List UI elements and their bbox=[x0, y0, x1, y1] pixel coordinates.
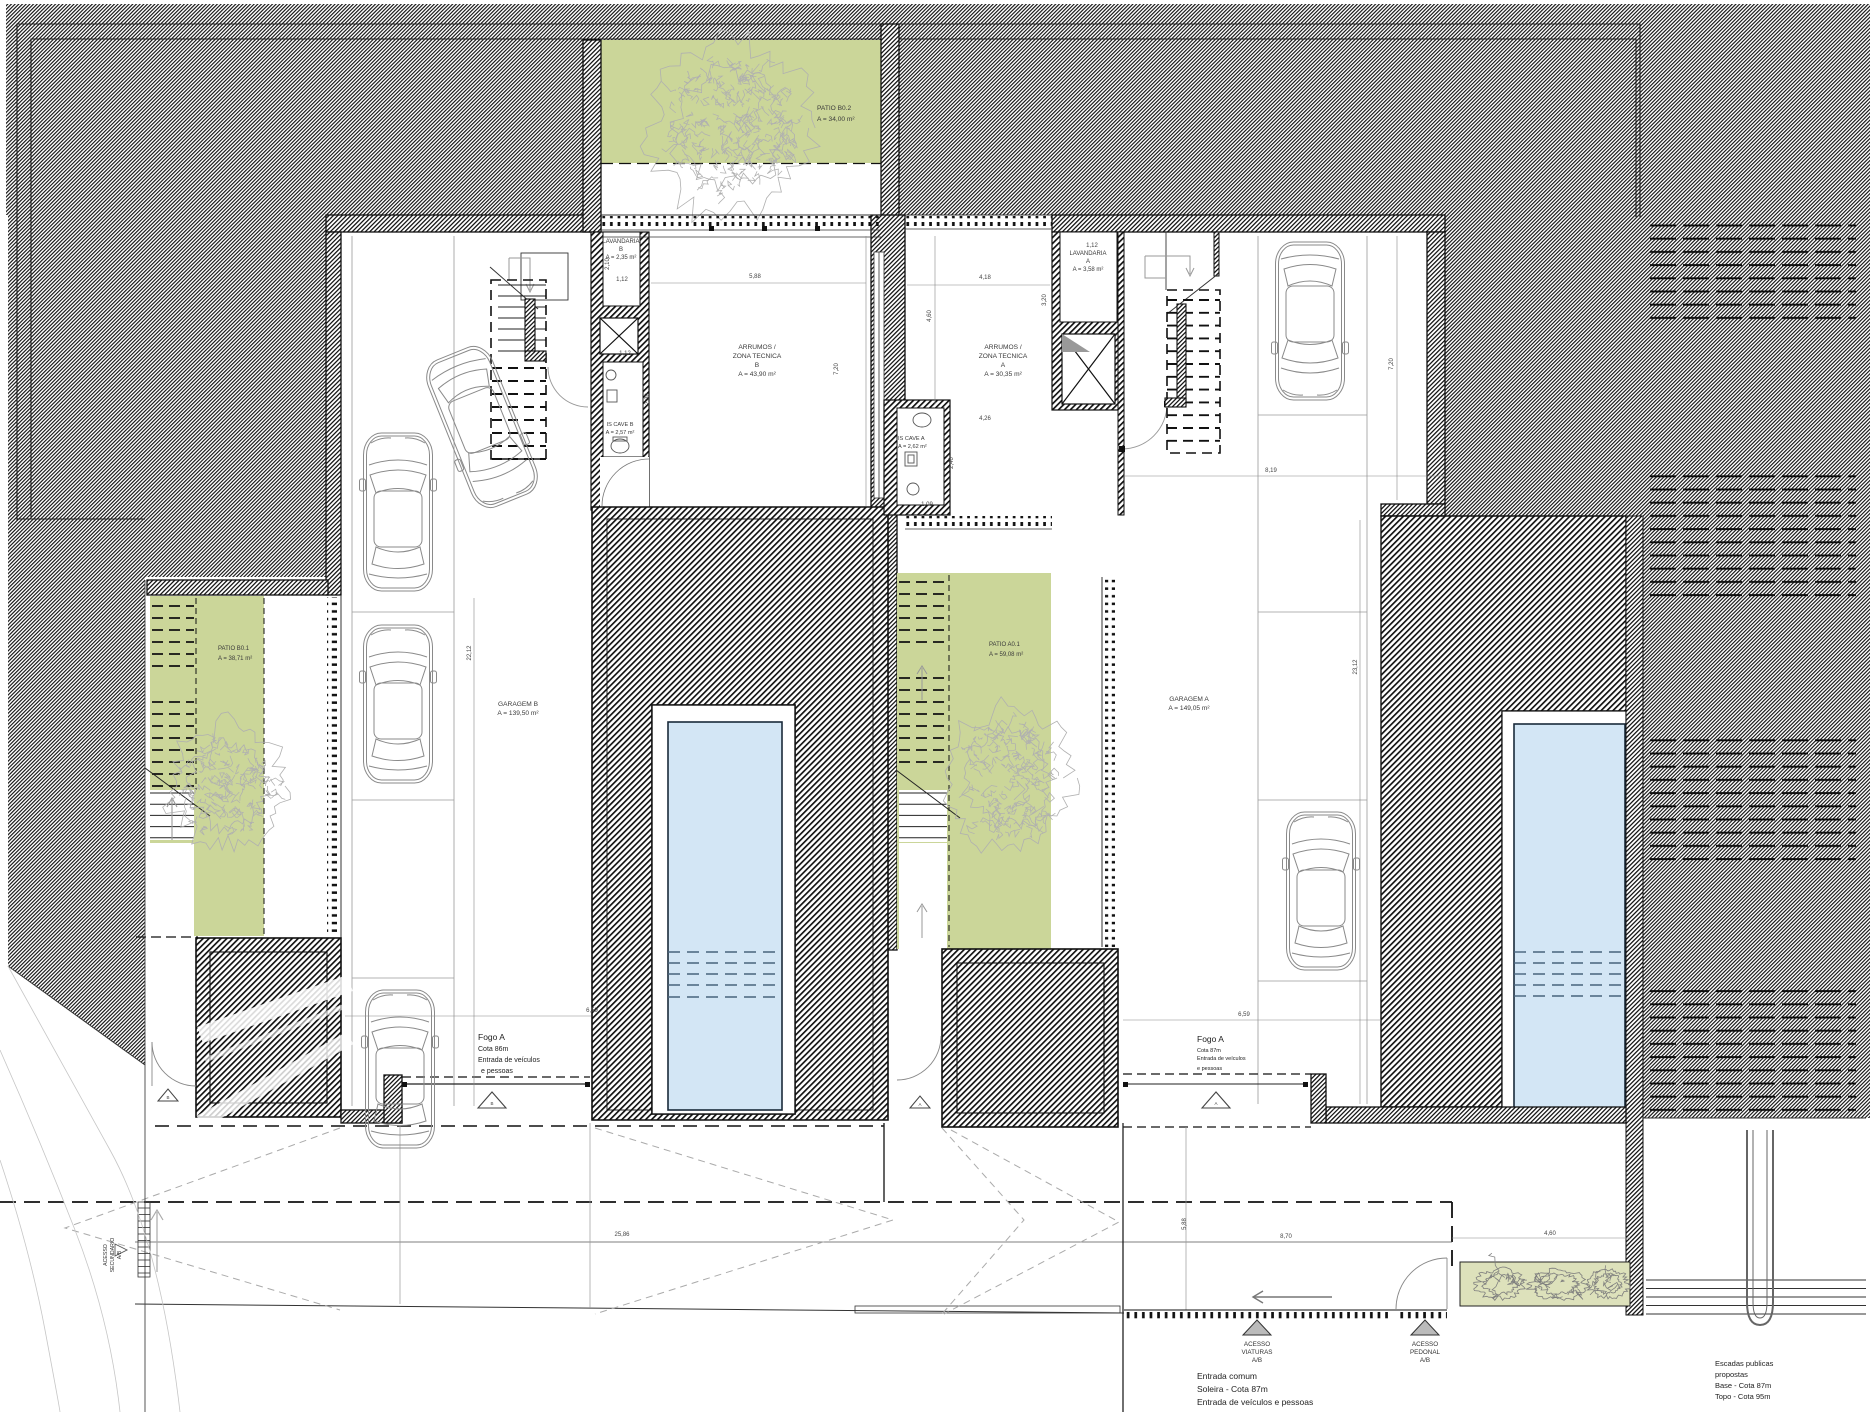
svg-text:23,12: 23,12 bbox=[1353, 659, 1359, 675]
svg-text:ARRUMOS /: ARRUMOS / bbox=[738, 344, 776, 351]
svg-text:LAVANDARIA: LAVANDARIA bbox=[602, 239, 639, 245]
svg-text:ACESSO: ACESSO bbox=[103, 1244, 109, 1266]
svg-text:5,88: 5,88 bbox=[749, 274, 761, 280]
svg-text:ZONA TECNICA: ZONA TECNICA bbox=[979, 353, 1028, 360]
svg-text:B: B bbox=[166, 1095, 169, 1100]
svg-text:Escadas publicas: Escadas publicas bbox=[1715, 1359, 1774, 1368]
svg-text:LAVANDARIA: LAVANDARIA bbox=[1069, 251, 1106, 257]
svg-text:2,10: 2,10 bbox=[605, 258, 611, 270]
svg-text:Entrada comum: Entrada comum bbox=[1197, 1371, 1257, 1381]
svg-text:B: B bbox=[619, 247, 623, 253]
svg-text:A: A bbox=[918, 1102, 921, 1107]
svg-text:6,59: 6,59 bbox=[586, 1008, 598, 1014]
svg-text:7,20: 7,20 bbox=[834, 363, 840, 375]
svg-text:A = 34,00 m²: A = 34,00 m² bbox=[817, 116, 855, 123]
svg-text:A = 3,58 m²: A = 3,58 m² bbox=[1073, 267, 1104, 273]
svg-text:Soleira - Cota 87m: Soleira - Cota 87m bbox=[1197, 1384, 1268, 1394]
svg-text:22,12: 22,12 bbox=[467, 645, 473, 661]
svg-text:A/B: A/B bbox=[117, 1250, 123, 1259]
svg-text:PATIO A0.1: PATIO A0.1 bbox=[989, 642, 1020, 648]
svg-text:PATIO B0.1: PATIO B0.1 bbox=[218, 646, 250, 652]
svg-text:A = 38,71 m²: A = 38,71 m² bbox=[218, 656, 252, 662]
svg-text:1,09: 1,09 bbox=[921, 502, 933, 508]
svg-text:ARRUMOS /: ARRUMOS / bbox=[984, 344, 1022, 351]
svg-text:Cota 87m: Cota 87m bbox=[1197, 1048, 1221, 1054]
svg-text:A = 2,62 m²: A = 2,62 m² bbox=[898, 444, 927, 450]
svg-text:ACESSO: ACESSO bbox=[1412, 1341, 1438, 1348]
svg-text:B: B bbox=[490, 1101, 493, 1106]
svg-text:1,12: 1,12 bbox=[619, 351, 631, 357]
svg-text:e pessoas: e pessoas bbox=[481, 1068, 513, 1075]
svg-text:SECUNDARIO: SECUNDARIO bbox=[110, 1238, 116, 1273]
svg-text:A/B: A/B bbox=[1420, 1357, 1430, 1364]
svg-text:7,20: 7,20 bbox=[1389, 358, 1395, 370]
svg-text:25,86: 25,86 bbox=[614, 1232, 630, 1238]
svg-text:GARAGEM A: GARAGEM A bbox=[1169, 696, 1209, 703]
svg-text:4,60: 4,60 bbox=[1544, 1231, 1556, 1237]
svg-text:1,12: 1,12 bbox=[616, 277, 628, 283]
svg-text:propostas: propostas bbox=[1715, 1370, 1748, 1379]
svg-text:8,70: 8,70 bbox=[1280, 1234, 1292, 1240]
svg-text:1,12: 1,12 bbox=[1086, 243, 1098, 249]
svg-text:A: A bbox=[1214, 1101, 1217, 1106]
svg-text:A = 43,90 m²: A = 43,90 m² bbox=[738, 371, 776, 378]
svg-text:A = 30,35 m²: A = 30,35 m² bbox=[984, 371, 1022, 378]
svg-text:4,18: 4,18 bbox=[979, 275, 991, 281]
svg-text:Topo - Cota 95m: Topo - Cota 95m bbox=[1715, 1392, 1770, 1401]
svg-text:ZONA TECNICA: ZONA TECNICA bbox=[733, 353, 782, 360]
svg-text:GARAGEM B: GARAGEM B bbox=[498, 701, 539, 708]
svg-text:PEDONAL: PEDONAL bbox=[1410, 1349, 1441, 1356]
svg-text:2,40: 2,40 bbox=[949, 457, 955, 469]
svg-text:A = 2,57 m²: A = 2,57 m² bbox=[606, 430, 635, 436]
svg-text:A: A bbox=[1086, 259, 1090, 265]
svg-text:IS CAVE A: IS CAVE A bbox=[898, 436, 925, 442]
svg-text:3,20: 3,20 bbox=[1042, 294, 1048, 306]
svg-text:IS CAVE B: IS CAVE B bbox=[607, 422, 634, 428]
svg-text:5,88: 5,88 bbox=[1182, 1218, 1188, 1230]
svg-text:Entrada de veículos e pessoas: Entrada de veículos e pessoas bbox=[1197, 1397, 1313, 1407]
svg-text:VIATURAS: VIATURAS bbox=[1241, 1349, 1272, 1356]
svg-text:Cota 86m: Cota 86m bbox=[478, 1046, 509, 1053]
svg-text:e pessoas: e pessoas bbox=[1197, 1066, 1222, 1072]
svg-text:ACESSO: ACESSO bbox=[1244, 1341, 1270, 1348]
svg-text:Fogo A: Fogo A bbox=[1197, 1034, 1224, 1044]
svg-text:A: A bbox=[1001, 362, 1006, 369]
svg-text:2,30: 2,30 bbox=[645, 393, 651, 405]
svg-text:Base - Cota 87m: Base - Cota 87m bbox=[1715, 1381, 1771, 1390]
svg-text:Entrada de veículos: Entrada de veículos bbox=[1197, 1056, 1246, 1062]
svg-text:6,59: 6,59 bbox=[1238, 1012, 1250, 1018]
svg-text:4,26: 4,26 bbox=[979, 416, 991, 422]
svg-text:A = 139,50 m²: A = 139,50 m² bbox=[497, 710, 539, 717]
svg-text:B: B bbox=[755, 362, 760, 369]
svg-text:A = 59,08 m²: A = 59,08 m² bbox=[989, 652, 1023, 658]
svg-text:Fogo A: Fogo A bbox=[478, 1032, 505, 1042]
svg-text:8,19: 8,19 bbox=[1265, 468, 1277, 474]
svg-text:4,60: 4,60 bbox=[927, 310, 933, 322]
svg-text:A/B: A/B bbox=[1252, 1357, 1262, 1364]
svg-text:Entrada de veículos: Entrada de veículos bbox=[478, 1057, 540, 1064]
svg-text:PATIO B0.2: PATIO B0.2 bbox=[817, 105, 852, 112]
svg-text:A = 149,05 m²: A = 149,05 m² bbox=[1168, 705, 1210, 712]
